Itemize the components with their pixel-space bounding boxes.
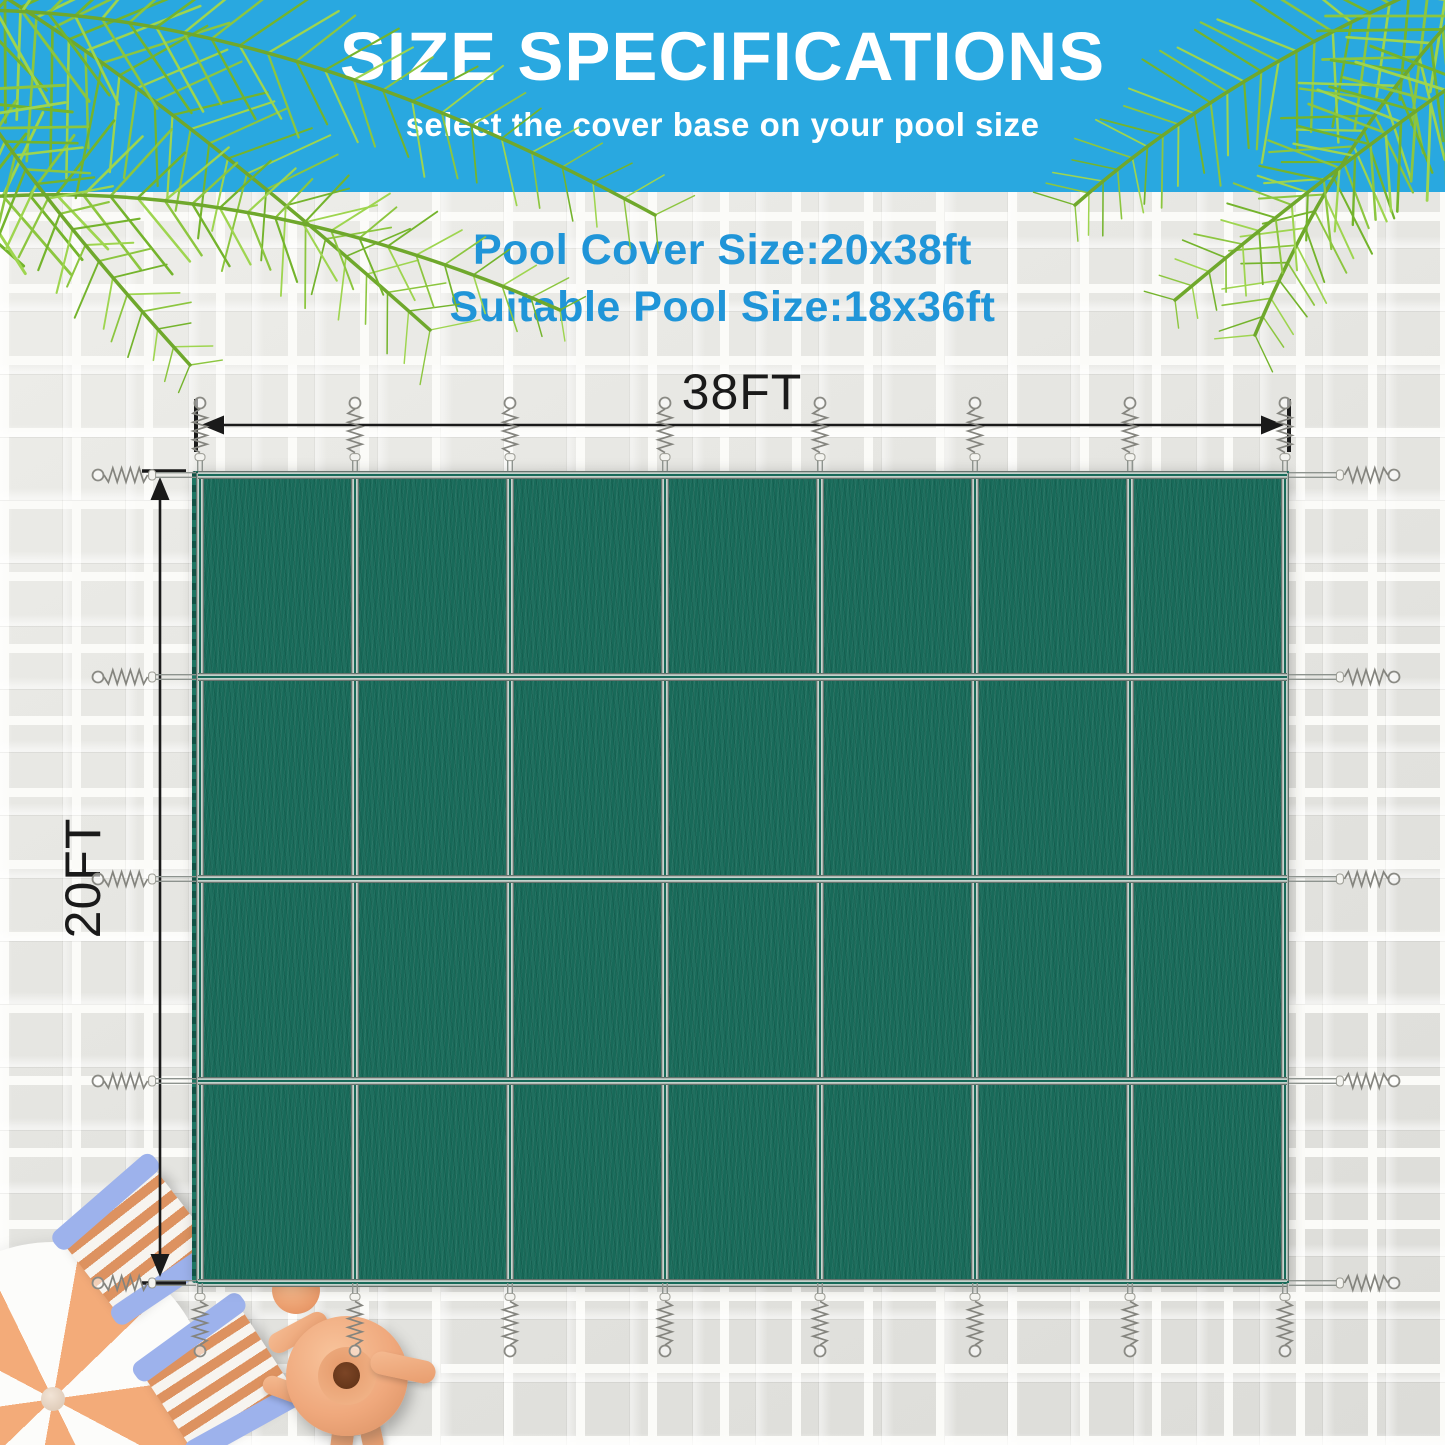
product-image: SIZE SPECIFICATIONS select the cover bas… (0, 0, 1445, 1445)
suitable-pool-size-text: Suitable Pool Size:18x36ft (0, 279, 1445, 336)
pool-cover (196, 471, 1289, 1283)
page-title: SIZE SPECIFICATIONS (0, 0, 1445, 91)
pool-cover-size-text: Pool Cover Size:20x38ft (0, 222, 1445, 279)
header-banner: SIZE SPECIFICATIONS select the cover bas… (0, 0, 1445, 192)
size-info: Pool Cover Size:20x38ft Suitable Pool Si… (0, 222, 1445, 336)
float-hole (333, 1362, 360, 1389)
pool-float-icon (286, 1316, 408, 1436)
page-subtitle: select the cover base on your pool size (0, 106, 1445, 144)
